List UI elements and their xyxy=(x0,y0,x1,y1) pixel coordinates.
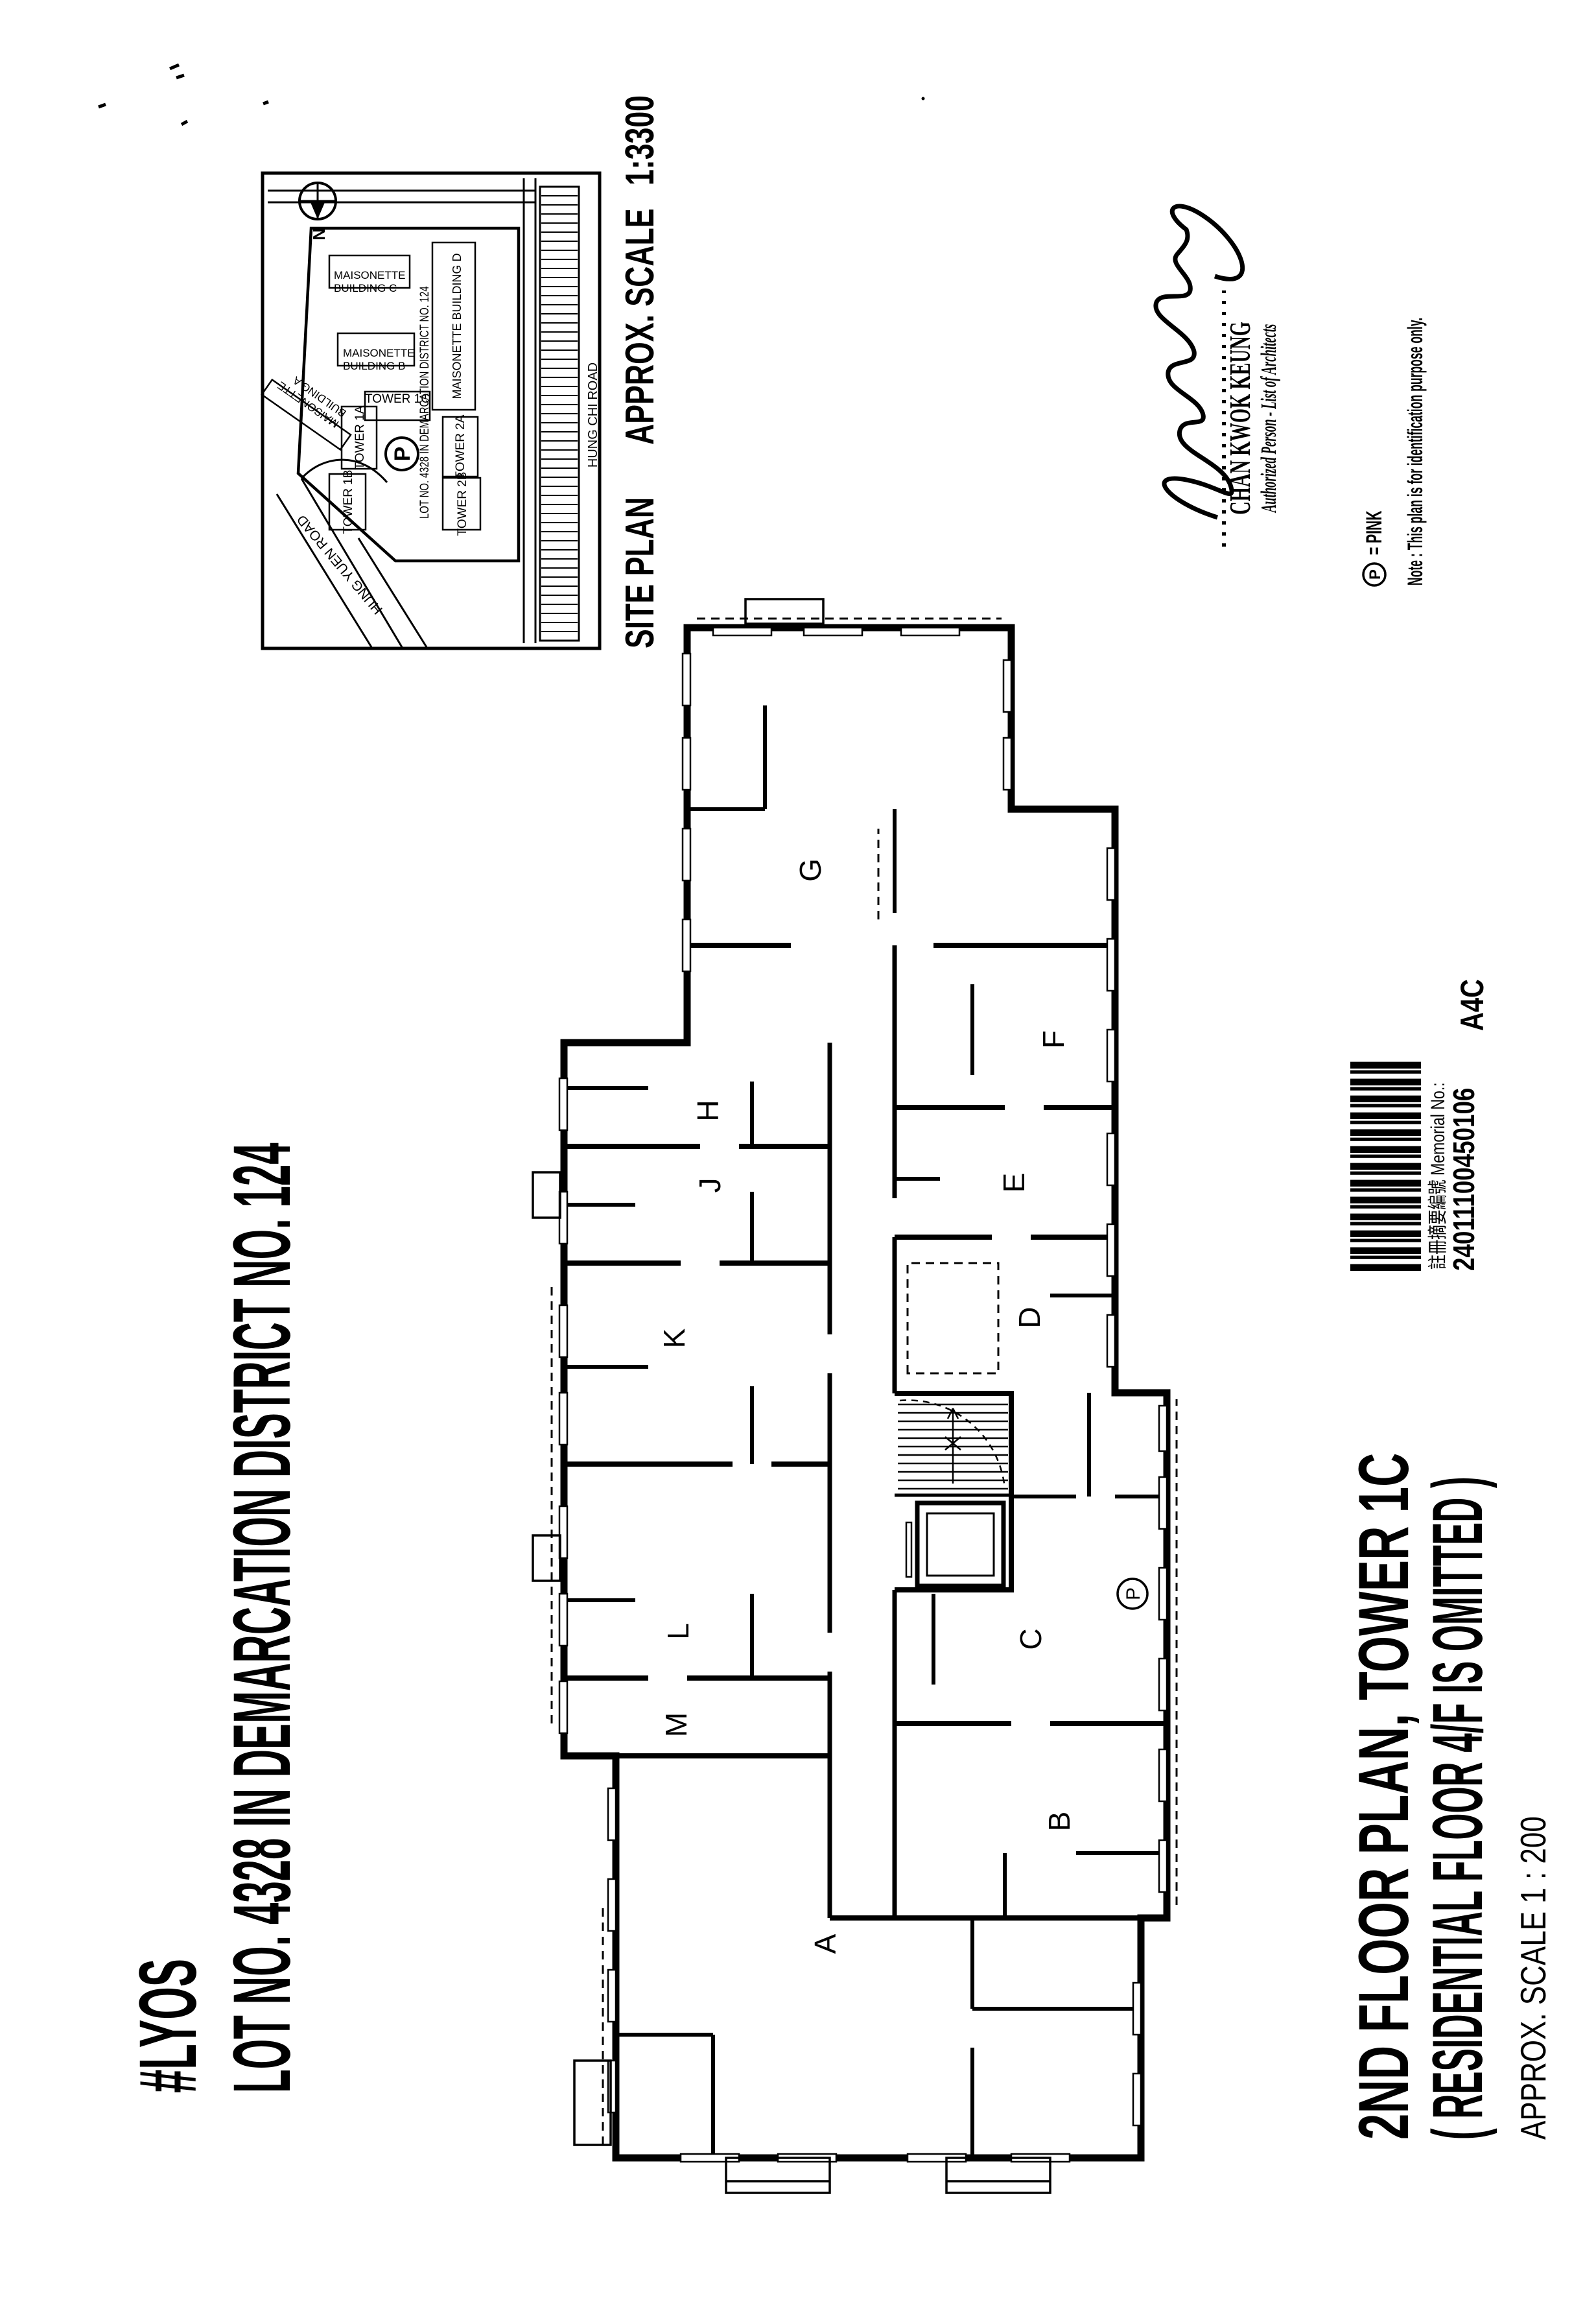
road-label-hung-yuen: HUNG YUEN ROAD xyxy=(294,512,386,617)
tower-1a-label: TOWER 1A xyxy=(353,405,367,469)
memorial-label: 註冊摘要編號 Memorial No.: xyxy=(1427,1082,1449,1270)
barcode-bar xyxy=(1350,1138,1421,1141)
barcode-bar xyxy=(1350,1104,1421,1107)
interior-partitions xyxy=(564,705,1167,2158)
lot-title: LOT NO. 4328 IN DEMARCATION DISTRICT NO.… xyxy=(217,1142,307,2093)
project-title: #LYOS LOT NO. 4328 IN DEMARCATION DISTRI… xyxy=(123,1142,307,2093)
unit-label-j: J xyxy=(693,1178,727,1193)
hung-chi-road-lines xyxy=(524,178,535,643)
caption-scale-value: 1:3300 xyxy=(618,95,663,185)
drawing-canvas: #LYOS LOT NO. 4328 IN DEMARCATION DISTRI… xyxy=(0,0,1596,2307)
barcode-bar xyxy=(1350,1079,1421,1085)
unit-label-g: G xyxy=(793,858,827,882)
site-parking-symbol: P xyxy=(386,438,418,470)
site-plan-labels: HUNG YUEN ROAD HUNG CHI ROAD MAISONETTE … xyxy=(276,253,600,617)
barcode-bar xyxy=(1350,1155,1421,1158)
unit-label-a: A xyxy=(808,1934,842,1954)
scanned-plan-sheet: #LYOS LOT NO. 4328 IN DEMARCATION DISTRI… xyxy=(0,0,1596,2307)
legend-p-symbol: P xyxy=(1367,569,1384,580)
tower-1b-label: TOWER 1B xyxy=(342,470,355,534)
tower-2b-label: TOWER 2B xyxy=(456,472,469,536)
north-needle xyxy=(310,201,325,219)
legend-block: P = PINK Note : This plan is for identif… xyxy=(1361,318,1427,586)
barcode-bar xyxy=(1350,1214,1421,1220)
unit-label-b: B xyxy=(1042,1812,1076,1832)
drawing-title-block: 2ND FLOOR PLAN, TOWER 1C ( RESIDENTIAL F… xyxy=(1344,1453,1553,2140)
memorial-block: 註冊摘要編號 Memorial No.: 24011100450106 A4C xyxy=(1350,979,1490,1271)
plan-parking-symbol: P xyxy=(1118,1579,1147,1609)
drawing-scale-note: APPROX. SCALE 1 : 200 xyxy=(1513,1816,1553,2140)
barcode-bar xyxy=(1350,1146,1421,1153)
corridor-walls xyxy=(830,945,895,1918)
lift-car xyxy=(927,1513,994,1576)
legend-note: Note : This plan is for identification p… xyxy=(1405,318,1427,586)
maisonette-a-label: MAISONETTE BUILDING A xyxy=(276,368,349,430)
unit-label-h: H xyxy=(691,1100,725,1121)
site-plan-caption: SITE PLAN APPROX. SCALE 1:3300 xyxy=(618,95,663,648)
outer-walls xyxy=(564,628,1167,2158)
caption-site-plan: SITE PLAN xyxy=(618,497,663,648)
barcode-bar xyxy=(1350,1096,1421,1102)
signer-role: Authorized Person - List of Architects xyxy=(1256,324,1280,514)
window-strips xyxy=(559,628,1167,2162)
unit-label-c: C xyxy=(1014,1628,1048,1650)
terrace-strip-hatch xyxy=(541,196,578,632)
barcode-bar xyxy=(1350,1121,1421,1124)
barcode xyxy=(1350,1062,1421,1271)
barcode-bar xyxy=(1350,1248,1421,1254)
barcode-bar xyxy=(1350,1256,1421,1259)
barcode-bar xyxy=(1350,1113,1421,1119)
site-plan-inset: N P HUNG YUEN ROAD HUNG CHI ROAD MAISONE… xyxy=(262,173,600,648)
landscape-drawing-layer: #LYOS LOT NO. 4328 IN DEMARCATION DISTRI… xyxy=(0,0,1596,2307)
barcode-bar xyxy=(1350,1222,1421,1225)
site-parking-label: P xyxy=(390,447,415,462)
barcode-bar xyxy=(1350,1163,1421,1170)
stair-core xyxy=(895,1393,1011,1590)
unit-label-d: D xyxy=(1013,1307,1046,1328)
memorial-number: 24011100450106 xyxy=(1447,1088,1481,1271)
project-name: #LYOS xyxy=(123,1959,213,2093)
barcode-bar xyxy=(1350,1205,1421,1209)
site-lot-text: LOT NO. 4328 IN DEMARCATION DISTRICT NO.… xyxy=(417,286,431,519)
barcode-bar xyxy=(1350,1239,1421,1242)
tower-2a-label: TOWER 2A xyxy=(454,414,467,479)
unit-label-f: F xyxy=(1037,1030,1070,1048)
maisonette-d-label: MAISONETTE BUILDING D xyxy=(451,253,464,399)
signer-name: CHAN KWOK KEUNG xyxy=(1224,322,1256,515)
barcode-bar xyxy=(1350,1197,1421,1203)
barcode-bar xyxy=(1350,1172,1421,1175)
maisonette-c-line2: BUILDING C xyxy=(334,282,397,294)
barcode-bar xyxy=(1350,1130,1421,1136)
north-label: N xyxy=(309,228,329,241)
drawing-title-line1: 2ND FLOOR PLAN, TOWER 1C xyxy=(1344,1453,1424,2140)
maisonette-b-line1: MAISONETTE xyxy=(343,347,415,359)
signature-block: CHAN KWOK KEUNG Authorized Person - List… xyxy=(1156,206,1281,547)
barcode-bar xyxy=(1350,1062,1421,1069)
unit-dividers xyxy=(564,945,1167,1918)
plan-parking-label: P xyxy=(1123,1587,1144,1600)
scan-specks xyxy=(99,65,925,124)
barcode-bar xyxy=(1350,1071,1421,1074)
lift-door xyxy=(906,1522,911,1577)
unit-label-e: E xyxy=(997,1173,1031,1193)
maisonette-b-line2: BUILDING B xyxy=(343,360,405,372)
sheet-code: A4C xyxy=(1454,979,1490,1031)
unit-label-l: L xyxy=(661,1623,695,1640)
barcode-bar xyxy=(1350,1189,1421,1192)
barcode-bar xyxy=(1350,1264,1421,1271)
maisonette-b-label: MAISONETTE BUILDING B xyxy=(343,347,415,372)
caption-approx-scale: APPROX. SCALE xyxy=(618,208,663,445)
barcode-bar xyxy=(1350,1087,1421,1091)
floor-plan: A B C D E F G H J K L M P xyxy=(533,599,1177,2193)
maisonette-c-label: MAISONETTE BUILDING C xyxy=(334,269,406,294)
maisonette-c-line1: MAISONETTE xyxy=(334,269,406,281)
drawing-title-line2: ( RESIDENTIAL FLOOR 4/F IS OMITTED ) xyxy=(1418,1476,1497,2140)
lift-shaft xyxy=(917,1503,1003,1586)
barcode-bar xyxy=(1350,1231,1421,1237)
road-label-hung-chi: HUNG CHI ROAD xyxy=(586,362,600,467)
legend-p-equals: = PINK xyxy=(1361,510,1386,555)
barcode-bar xyxy=(1350,1180,1421,1187)
unit-label-m: M xyxy=(659,1712,693,1737)
unit-label-k: K xyxy=(657,1328,691,1348)
